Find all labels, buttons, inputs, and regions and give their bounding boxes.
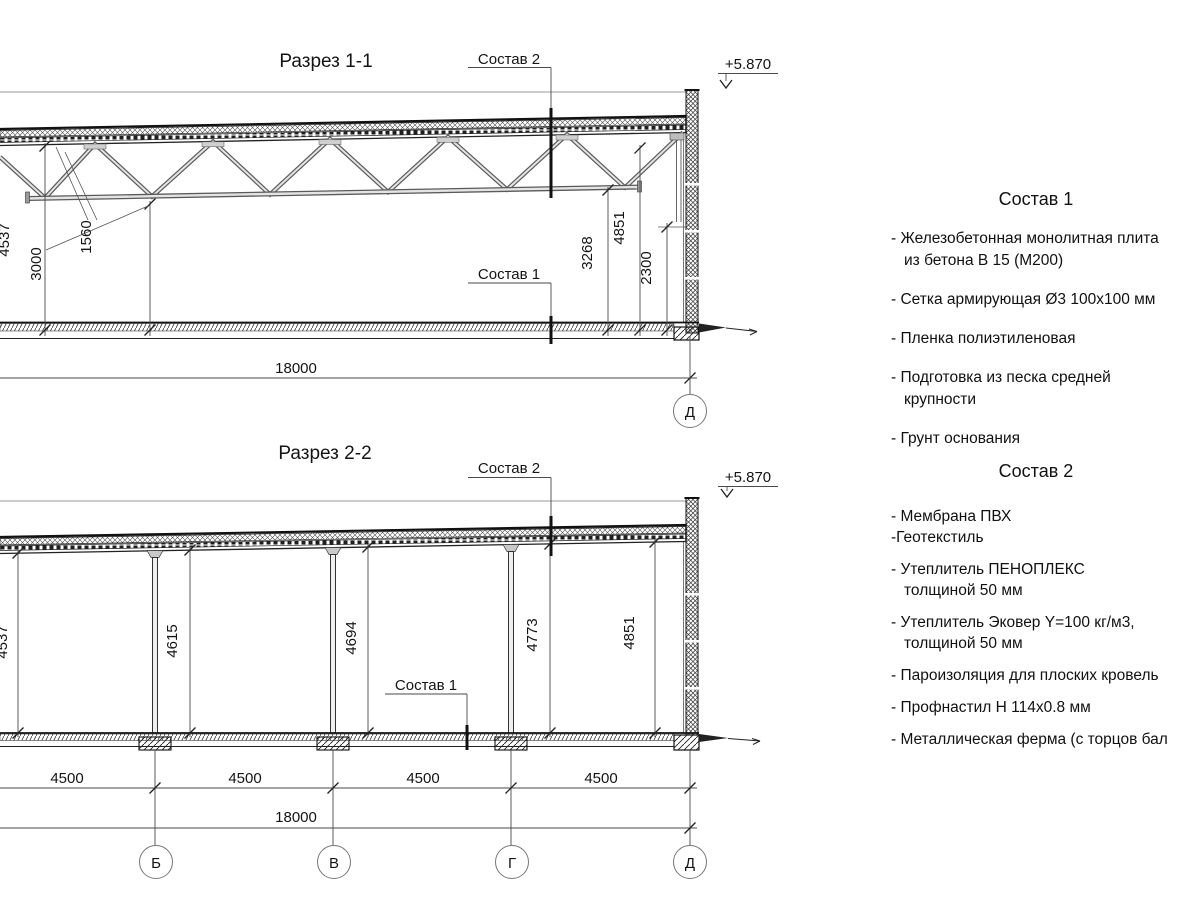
wall-foundation	[674, 327, 699, 340]
chord-end-plate	[638, 181, 642, 192]
legend-2-item: - Пароизоляция для плоских кровель	[891, 665, 1200, 686]
callout-sostav2: Состав 2	[478, 51, 540, 68]
right-dimensions: 3268 4851 2300	[579, 143, 673, 337]
dim-2300: 2300	[638, 251, 655, 284]
drawing-sheet: { "sections": { "s1": { "title": "Разрез…	[0, 0, 1200, 900]
legend-2-item: - Мембрана ПВХ	[891, 506, 1200, 527]
grid-letter-d: Д	[685, 404, 695, 421]
apron-arrow	[752, 739, 760, 745]
right-wall	[686, 498, 698, 735]
dim-18000: 18000	[275, 360, 317, 377]
gusset-plate	[202, 142, 224, 147]
dim-4851: 4851	[621, 616, 638, 649]
legend-1-title: Состав 1	[891, 189, 1181, 210]
legend-2-item: - Профнастил Н 114х0.8 мм	[891, 697, 1200, 718]
dim-3268: 3268	[579, 236, 596, 269]
column-capital	[147, 551, 163, 558]
truss-bottom-chord-fill	[28, 187, 640, 199]
dim-bay-4: 4500	[584, 770, 617, 787]
column-capital	[503, 545, 519, 552]
legend-2-item: -Геотекстиль	[891, 527, 1200, 548]
wall-panel-joint	[685, 687, 700, 690]
column-foundation	[495, 737, 527, 750]
left-dimensions: 4537 3000 1560	[0, 141, 156, 337]
legend-1-item: - Подготовка из песка средней крупности	[891, 367, 1200, 411]
composition-1-legend: Состав 1 - Железобетонная монолитная пли…	[891, 189, 1200, 467]
apron-wedge	[699, 324, 726, 333]
floor-hatch-band	[0, 324, 674, 332]
section-2-title: Разрез 2-2	[278, 443, 371, 464]
grid-letter-v: В	[329, 855, 339, 872]
roof-assembly	[0, 525, 686, 554]
chord-end-plate	[26, 192, 30, 203]
column	[153, 558, 158, 734]
composition-2-legend: Состав 2 - Мембрана ПВХ -Геотекстиль - У…	[891, 461, 1200, 761]
column-foundation	[139, 737, 171, 750]
grid-letter-b: Б	[151, 855, 161, 872]
wall-foundation	[674, 735, 699, 750]
column	[509, 552, 514, 734]
floor-slab	[0, 323, 757, 341]
dim-bay-1: 4500	[50, 770, 83, 787]
gusset-plate	[84, 144, 106, 149]
right-wall	[686, 90, 698, 333]
apron-wedge	[699, 734, 728, 742]
apron-arrow	[749, 329, 757, 335]
dim-4851: 4851	[611, 211, 628, 244]
column	[331, 555, 336, 734]
dim-4615: 4615	[164, 624, 181, 657]
wall-panel-joint	[685, 183, 700, 186]
elevation-mark: +5.870	[718, 469, 778, 497]
elevation-value: +5.870	[725, 469, 771, 486]
dim-bay-2: 4500	[228, 770, 261, 787]
legend-1-item: - Грунт основания	[891, 428, 1200, 450]
legend-1-item: - Пленка полиэтиленовая	[891, 328, 1200, 350]
elevation-arrow	[720, 80, 732, 88]
column-foundation	[317, 737, 349, 750]
roof-assembly	[0, 116, 686, 146]
legend-2-item: - Утеплитель Эковер Y=100 кг/м3, толщино…	[891, 612, 1200, 654]
callout-sostav1: Состав 1	[478, 266, 540, 283]
section-2-2: Разрез 2-2	[0, 443, 778, 879]
dim-4773: 4773	[524, 618, 541, 651]
truss-bearing-plate	[670, 133, 684, 140]
wall-panel-joint	[685, 277, 700, 280]
section-1-title: Разрез 1-1	[279, 51, 372, 72]
elevation-mark: +5.870	[718, 56, 778, 88]
dim-4537: 4537	[0, 223, 13, 256]
floor-slab	[0, 733, 760, 750]
legend-1-item: - Сетка армирующая Ø3 100х100 мм	[891, 289, 1200, 311]
legend-2-item: - Утеплитель ПЕНОПЛЕКС толщиной 50 мм	[891, 559, 1200, 601]
bay-dimensions: 4500 4500 4500 4500 18000 Б В Г Д	[0, 750, 707, 879]
legend-2-title: Состав 2	[891, 461, 1181, 482]
dim-4694: 4694	[343, 621, 360, 654]
dim-bay-3: 4500	[406, 770, 439, 787]
columns	[147, 545, 519, 734]
elevation-value: +5.870	[725, 56, 771, 73]
gusset-plate	[319, 140, 341, 145]
wall-panel-joint	[685, 230, 700, 233]
wall-panel-joint	[685, 640, 700, 643]
callout-sostav2: Состав 2	[478, 460, 540, 477]
grid-letter-d: Д	[685, 855, 695, 872]
column-capital	[325, 548, 341, 555]
composition-callouts: Состав 2 Состав 1	[385, 460, 551, 750]
legend-2-item: - Металлическая ферма (с торцов бал	[891, 729, 1200, 750]
grid-letter-g: Г	[508, 855, 516, 872]
dim-4537: 4537	[0, 625, 11, 658]
section-1-1: Разрез 1-1	[0, 51, 778, 428]
gusset-plate	[437, 137, 459, 142]
span-dimension: 18000 Д	[0, 336, 707, 428]
legend-1-item: - Железобетонная монолитная плита из бет…	[891, 228, 1200, 272]
dim-1560: 1560	[78, 220, 95, 253]
dim-18000: 18000	[275, 809, 317, 826]
wall-panel-joint	[685, 593, 700, 596]
dim-3000: 3000	[28, 247, 45, 280]
callout-sostav1: Состав 1	[395, 677, 457, 694]
gusset-plate	[556, 135, 578, 140]
composition-callouts: Состав 2 Состав 1	[468, 51, 551, 344]
